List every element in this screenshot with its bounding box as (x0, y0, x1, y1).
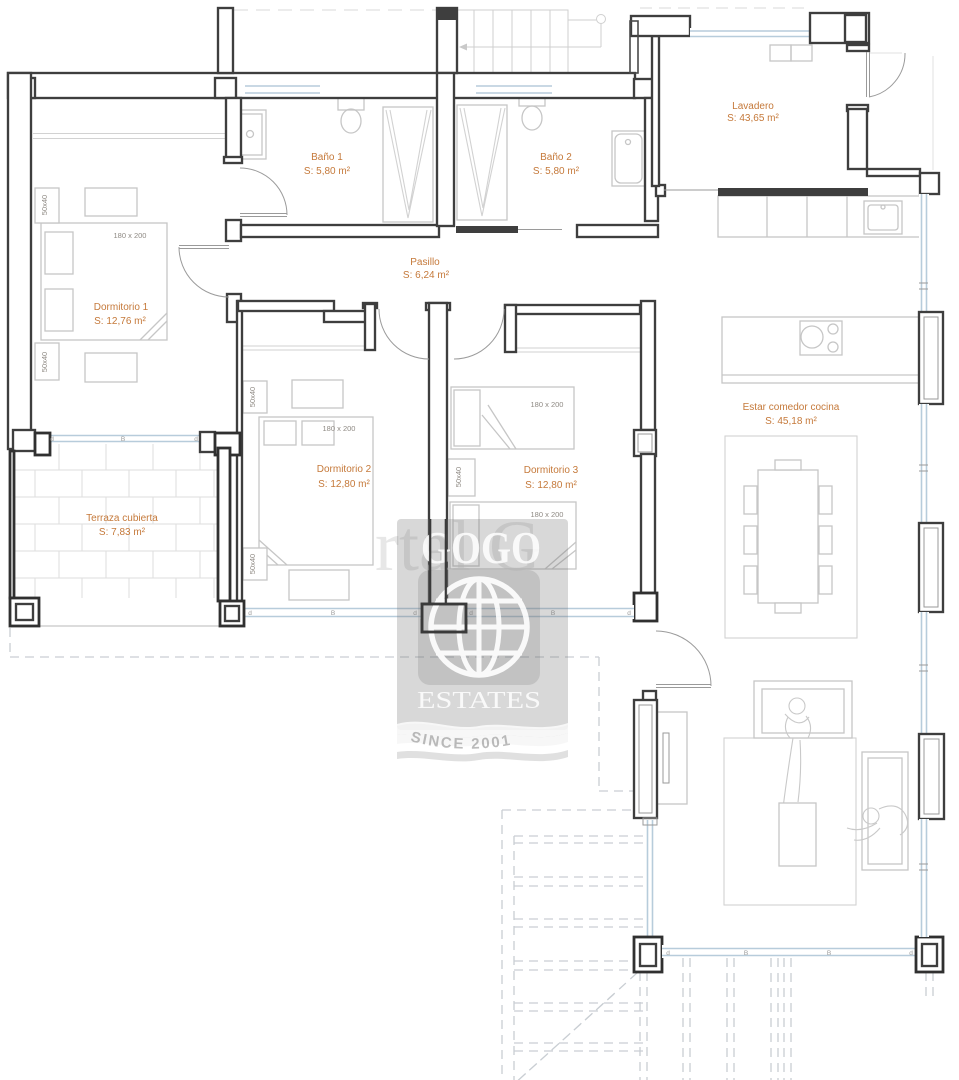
svg-text:50x40: 50x40 (40, 352, 49, 372)
svg-text:S: 12,76 m²: S: 12,76 m² (94, 316, 146, 327)
svg-text:180 x 200: 180 x 200 (531, 400, 564, 409)
svg-text:S: 7,83 m²: S: 7,83 m² (99, 527, 146, 538)
svg-text:Dormitorio 3: Dormitorio 3 (524, 465, 579, 476)
svg-text:Pasillo: Pasillo (410, 257, 440, 268)
svg-text:S: 5,80 m²: S: 5,80 m² (533, 166, 580, 177)
svg-text:S: 43,65 m²: S: 43,65 m² (727, 113, 779, 124)
svg-text:Terraza cubierta: Terraza cubierta (86, 513, 158, 524)
svg-text:Baño 1: Baño 1 (311, 152, 343, 163)
svg-text:d: d (909, 950, 913, 957)
svg-text:S: 6,24 m²: S: 6,24 m² (403, 270, 450, 281)
svg-text:S: 5,80 m²: S: 5,80 m² (304, 166, 351, 177)
svg-text:ESTATES: ESTATES (417, 688, 541, 714)
svg-text:50x40: 50x40 (454, 467, 463, 487)
svg-text:S: 12,80 m²: S: 12,80 m² (525, 480, 577, 491)
svg-text:180 x 200: 180 x 200 (323, 424, 356, 433)
svg-text:50x40: 50x40 (248, 554, 257, 574)
svg-text:S: 12,80 m²: S: 12,80 m² (318, 479, 370, 490)
svg-text:180 x 200: 180 x 200 (114, 231, 147, 240)
svg-text:Estar comedor cocina: Estar comedor cocina (743, 402, 840, 413)
svg-text:d: d (666, 950, 670, 957)
svg-text:Dormitorio 1: Dormitorio 1 (94, 302, 149, 313)
svg-text:Baño 2: Baño 2 (540, 152, 572, 163)
svg-text:S: 45,18 m²: S: 45,18 m² (765, 416, 817, 427)
svg-text:B: B (121, 436, 125, 443)
svg-text:d: d (194, 436, 198, 443)
svg-text:Lavadero: Lavadero (732, 101, 774, 112)
svg-text:d: d (627, 610, 631, 617)
svg-text:B: B (331, 610, 335, 617)
svg-text:50x40: 50x40 (248, 387, 257, 407)
svg-text:GOGO: GOGO (421, 522, 541, 573)
svg-text:50x40: 50x40 (40, 195, 49, 215)
svg-text:B: B (827, 950, 831, 957)
svg-text:d: d (50, 436, 54, 443)
svg-text:Dormitorio 2: Dormitorio 2 (317, 464, 372, 475)
svg-text:d: d (248, 610, 252, 617)
svg-text:B: B (744, 950, 748, 957)
